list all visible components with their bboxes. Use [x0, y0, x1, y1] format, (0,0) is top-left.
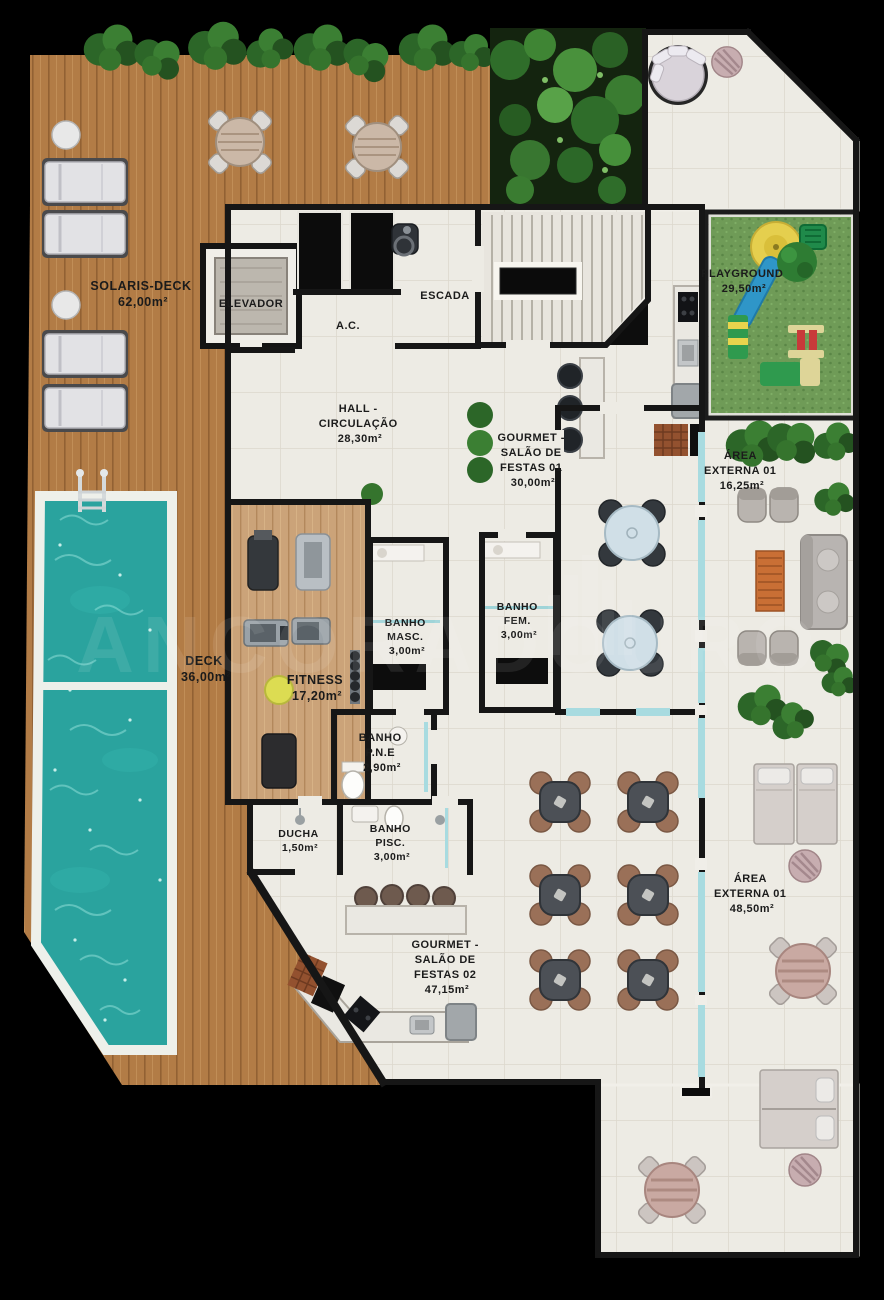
door-marker: [681, 1087, 711, 1097]
party-table-set: [618, 950, 678, 1010]
floor-plan: SOLARIS-DECK 62,00m² ELEVADOR ESCADA A.C…: [0, 0, 884, 1300]
toilet-icon: [342, 762, 364, 799]
play-unit-icon: [760, 358, 820, 386]
room-label-ac: A.C.: [336, 320, 360, 332]
pool: [36, 469, 174, 1050]
shower-head-icon: [435, 815, 445, 825]
ottoman: [789, 1154, 821, 1186]
elevator: [203, 246, 299, 348]
treadmill-icon: [248, 536, 278, 590]
glass-wall: [698, 432, 705, 1077]
party-table-set: [530, 950, 590, 1010]
cooktop-icon: [678, 292, 698, 322]
party-table-set: [618, 865, 678, 925]
party-table-set: [599, 500, 665, 566]
armchair: [770, 488, 798, 522]
outdoor-table-set: [768, 936, 839, 1007]
side-table: [52, 291, 80, 319]
bar-stool: [558, 364, 582, 388]
bench-icon: [262, 734, 296, 788]
party-table-set: [618, 772, 678, 832]
fridge-icon: [446, 1004, 476, 1040]
bar-stool: [381, 885, 403, 907]
stair-handrail: [500, 268, 576, 294]
dining-set: [344, 114, 410, 180]
tropical-plants: [490, 28, 646, 210]
armchair: [738, 488, 766, 522]
room-label-banho-pisc: BANHO PISC. 3,00m²: [370, 823, 414, 863]
room-label-elevador: ELEVADOR: [219, 298, 283, 310]
fridge-icon: [672, 384, 702, 418]
dining-set: [207, 109, 273, 175]
room-label-banho-pne: BANHO P.N.E 2,90m²: [359, 732, 405, 774]
party-table-set: [530, 865, 590, 925]
party-table-set: [530, 772, 590, 832]
round-daybed: [648, 45, 708, 105]
outdoor-table-set: [637, 1155, 708, 1226]
bar-stool: [407, 885, 429, 907]
svg-text:ANCORADOURO: ANCORADOURO: [76, 600, 824, 689]
ottoman: [712, 47, 742, 77]
shower-head-icon: [295, 815, 305, 825]
room-label-escada: ESCADA: [420, 290, 469, 302]
floor-plan-canvas: SOLARIS-DECK 62,00m² ELEVADOR ESCADA A.C…: [0, 0, 884, 1300]
daybed: [797, 764, 837, 844]
play-bench-icon: [728, 315, 748, 359]
ottoman: [789, 850, 821, 882]
sink-icon: [352, 806, 378, 822]
playground: [706, 212, 856, 418]
side-table: [52, 121, 80, 149]
daybed: [754, 764, 794, 844]
wheelchair-icon: [392, 224, 418, 255]
